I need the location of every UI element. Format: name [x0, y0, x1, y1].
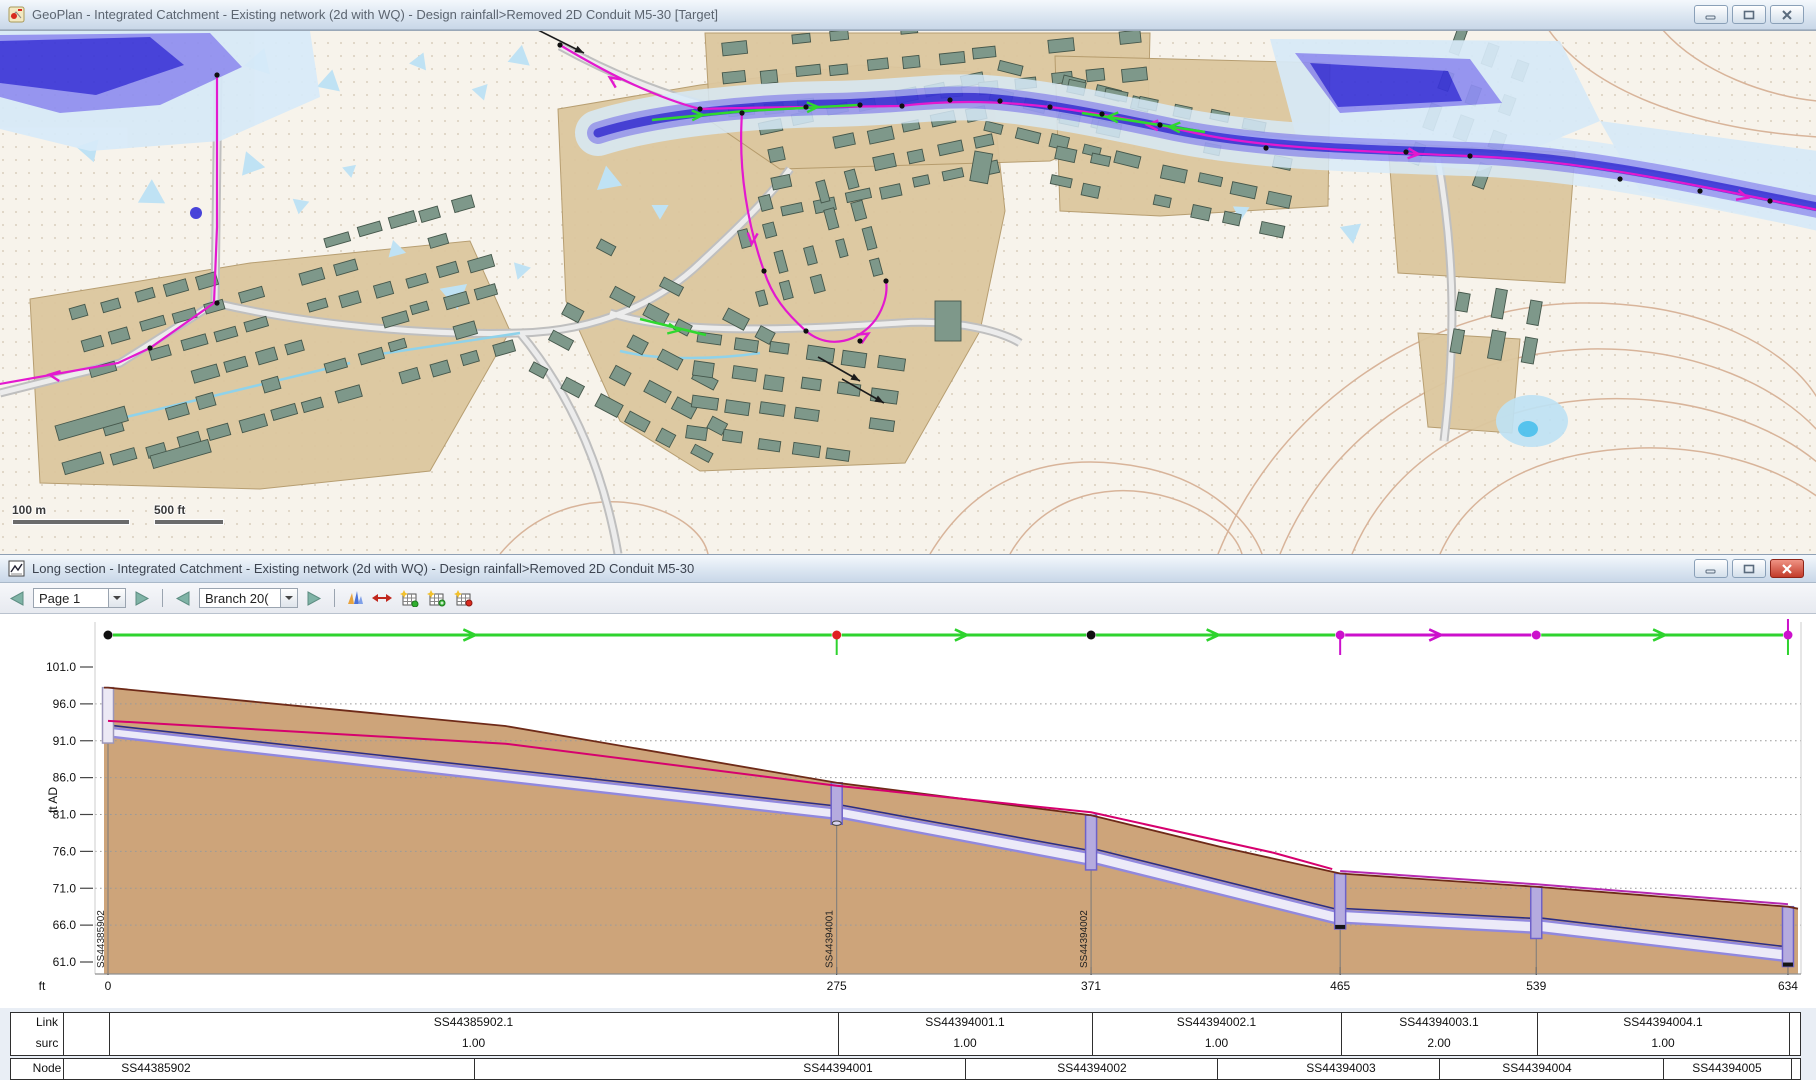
svg-text:SS44394002: SS44394002: [1079, 910, 1090, 968]
svg-text:275: 275: [827, 979, 847, 993]
svg-text:ft: ft: [39, 979, 46, 993]
histogram-icon: [346, 590, 364, 606]
link-surcharge-cell[interactable]: 1.00: [462, 1036, 485, 1050]
next-branch-button[interactable]: [303, 588, 325, 608]
branch-selector-value: Branch 20(: [205, 591, 269, 606]
node-id-cell[interactable]: SS44394001: [803, 1061, 872, 1075]
svg-text:66.0: 66.0: [53, 918, 77, 932]
svg-text:539: 539: [1526, 979, 1546, 993]
link-surcharge-cell[interactable]: 1.00: [1205, 1036, 1228, 1050]
svg-text:61.0: 61.0: [53, 955, 77, 969]
node-id-cell[interactable]: SS44394004: [1502, 1061, 1571, 1075]
grid-links-button[interactable]: [425, 588, 447, 608]
svg-text:634: 634: [1778, 979, 1798, 993]
geoplan-icon: [8, 6, 25, 23]
svg-text:91.0: 91.0: [53, 734, 77, 748]
long-section-canvas[interactable]: 101.096.091.086.081.076.071.066.061.0027…: [0, 614, 1816, 1008]
graph-style-button[interactable]: [344, 588, 366, 608]
geoplan-map[interactable]: 100 m 500 ft: [0, 30, 1816, 554]
svg-text:96.0: 96.0: [53, 697, 77, 711]
maximize-button[interactable]: [1732, 5, 1766, 24]
node-id-cell[interactable]: SS44394003: [1306, 1061, 1375, 1075]
triangle-left-icon: [9, 591, 25, 606]
link-surcharge-cell[interactable]: 1.00: [1651, 1036, 1674, 1050]
long-section-table: LinksurcSS44385902.11.00SS44394001.11.00…: [0, 1008, 1816, 1080]
geoplan-map-canvas[interactable]: [0, 31, 1816, 554]
close-button[interactable]: [1770, 5, 1804, 24]
link-surcharge-cell[interactable]: 1.00: [953, 1036, 976, 1050]
geoplan-titlebar[interactable]: GeoPlan - Integrated Catchment - Existin…: [0, 0, 1816, 30]
svg-text:465: 465: [1330, 979, 1350, 993]
link-id-cell[interactable]: SS44394002.1: [1177, 1015, 1256, 1029]
page-selector-dropdown[interactable]: [109, 588, 126, 608]
scale-imperial-label: 500 ft: [154, 503, 224, 517]
geoplan-title: GeoPlan - Integrated Catchment - Existin…: [32, 7, 1694, 22]
branch-selector[interactable]: Branch 20(: [199, 588, 281, 608]
long-section-chart[interactable]: 101.096.091.086.081.076.071.066.061.0027…: [0, 614, 1816, 1008]
triangle-left-icon: [175, 591, 191, 606]
svg-text:0: 0: [105, 979, 112, 993]
node-id-cell[interactable]: SS44394005: [1692, 1061, 1761, 1075]
grid-links-icon: [427, 590, 446, 607]
grid-nodes-icon: [454, 590, 473, 607]
link-id-cell[interactable]: SS44394004.1: [1623, 1015, 1702, 1029]
grid-add-icon: [400, 590, 419, 607]
toolbar-separator: [334, 589, 335, 607]
chevron-down-icon: [285, 595, 294, 601]
geoplan-window: GeoPlan - Integrated Catchment - Existin…: [0, 0, 1816, 555]
node-id-cell[interactable]: SS44385902: [121, 1061, 190, 1075]
long-section-icon: [8, 560, 25, 577]
double-arrow-icon: [372, 592, 392, 604]
node-row-header: Node: [33, 1061, 62, 1075]
link-id-cell[interactable]: SS44394001.1: [925, 1015, 1004, 1029]
svg-text:ft AD: ft AD: [46, 787, 60, 813]
minimize-button[interactable]: [1694, 559, 1728, 578]
triangle-right-icon: [134, 591, 150, 606]
grid-nodes-button[interactable]: [452, 588, 474, 608]
previous-branch-button[interactable]: [172, 588, 194, 608]
scale-metric-label: 100 m: [12, 503, 130, 517]
link-row-header: Link: [36, 1015, 58, 1029]
long-section-window: Long section - Integrated Catchment - Ex…: [0, 555, 1816, 1080]
link-surcharge-cell[interactable]: 2.00: [1427, 1036, 1450, 1050]
scale-metric-bar: [12, 519, 130, 525]
page-selector[interactable]: Page 1: [33, 588, 109, 608]
long-section-title: Long section - Integrated Catchment - Ex…: [32, 561, 1694, 576]
link-surcharge-rows: LinksurcSS44385902.11.00SS44394001.11.00…: [10, 1012, 1801, 1056]
surc-row-header: surc: [36, 1036, 59, 1050]
link-id-cell[interactable]: SS44385902.1: [434, 1015, 513, 1029]
link-id-cell[interactable]: SS44394003.1: [1399, 1015, 1478, 1029]
map-scale-bar: 100 m 500 ft: [12, 503, 224, 525]
toolbar-separator: [162, 589, 163, 607]
svg-text:SS44385902: SS44385902: [96, 910, 107, 968]
triangle-right-icon: [306, 591, 322, 606]
svg-text:86.0: 86.0: [53, 771, 77, 785]
svg-text:71.0: 71.0: [53, 881, 77, 895]
branch-selector-dropdown[interactable]: [281, 588, 298, 608]
grid-new-window-button[interactable]: [398, 588, 420, 608]
svg-text:76.0: 76.0: [53, 844, 77, 858]
previous-page-button[interactable]: [6, 588, 28, 608]
resize-extents-button[interactable]: [371, 588, 393, 608]
scale-imperial-bar: [154, 519, 224, 525]
close-button[interactable]: [1770, 559, 1804, 578]
minimize-button[interactable]: [1694, 5, 1728, 24]
svg-text:101.0: 101.0: [46, 660, 76, 674]
next-page-button[interactable]: [131, 588, 153, 608]
long-section-titlebar[interactable]: Long section - Integrated Catchment - Ex…: [0, 555, 1816, 583]
long-section-toolbar: Page 1 Branch 20(: [0, 583, 1816, 614]
svg-text:SS44394001: SS44394001: [825, 910, 836, 968]
chevron-down-icon: [113, 595, 122, 601]
svg-text:371: 371: [1081, 979, 1101, 993]
maximize-button[interactable]: [1732, 559, 1766, 578]
node-id-cell[interactable]: SS44394002: [1057, 1061, 1126, 1075]
node-row: NodeSS44385902SS44394001SS44394002SS4439…: [10, 1058, 1801, 1080]
page-selector-value: Page 1: [39, 591, 80, 606]
